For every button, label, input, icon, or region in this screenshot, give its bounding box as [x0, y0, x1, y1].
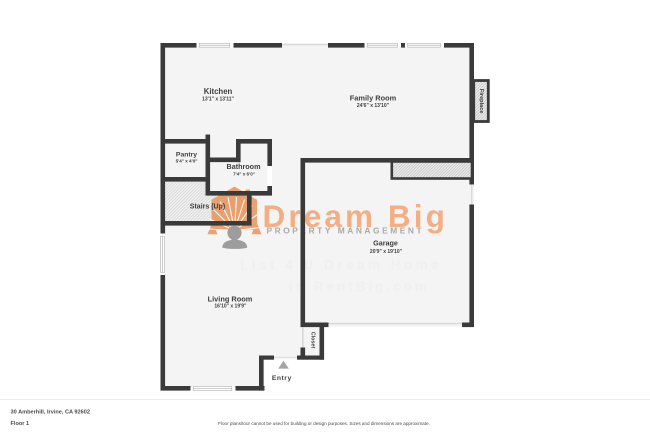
svg-text:Living Room: Living Room — [208, 294, 253, 303]
svg-text:16'10" x 19'9": 16'10" x 19'9" — [214, 304, 247, 310]
svg-text:Pantry: Pantry — [176, 152, 197, 159]
svg-text:in RentBig.com: in RentBig.com — [289, 279, 430, 294]
svg-text:Bathroom: Bathroom — [227, 162, 261, 171]
svg-text:List 4 U Dream Home: List 4 U Dream Home — [240, 258, 442, 273]
svg-text:Kitchen: Kitchen — [204, 87, 233, 96]
svg-text:Stairs (Up): Stairs (Up) — [190, 204, 225, 211]
svg-text:Closet: Closet — [309, 332, 315, 349]
svg-text:Floor 1: Floor 1 — [11, 421, 30, 427]
svg-text:Garage: Garage — [373, 239, 398, 248]
svg-text:13'1" x 13'11": 13'1" x 13'11" — [202, 97, 234, 103]
svg-text:Family Room: Family Room — [350, 94, 397, 103]
svg-text:7'4" x 6'0": 7'4" x 6'0" — [233, 172, 255, 177]
svg-text:30 Amberhill, Irvine, CA 92602: 30 Amberhill, Irvine, CA 92602 — [11, 410, 91, 416]
svg-text:Floor plans/tour cannot be use: Floor plans/tour cannot be used for buil… — [218, 421, 430, 426]
svg-text:Entry: Entry — [272, 375, 292, 382]
svg-text:5'4" x 4'0": 5'4" x 4'0" — [176, 159, 198, 164]
svg-text:PROPERTY MANAGEMENT: PROPERTY MANAGEMENT — [267, 226, 425, 236]
svg-text:Fireplace: Fireplace — [478, 89, 484, 114]
svg-text:20'9" x 19'10": 20'9" x 19'10" — [370, 249, 403, 255]
svg-text:24'6" x 13'10": 24'6" x 13'10" — [357, 103, 390, 109]
